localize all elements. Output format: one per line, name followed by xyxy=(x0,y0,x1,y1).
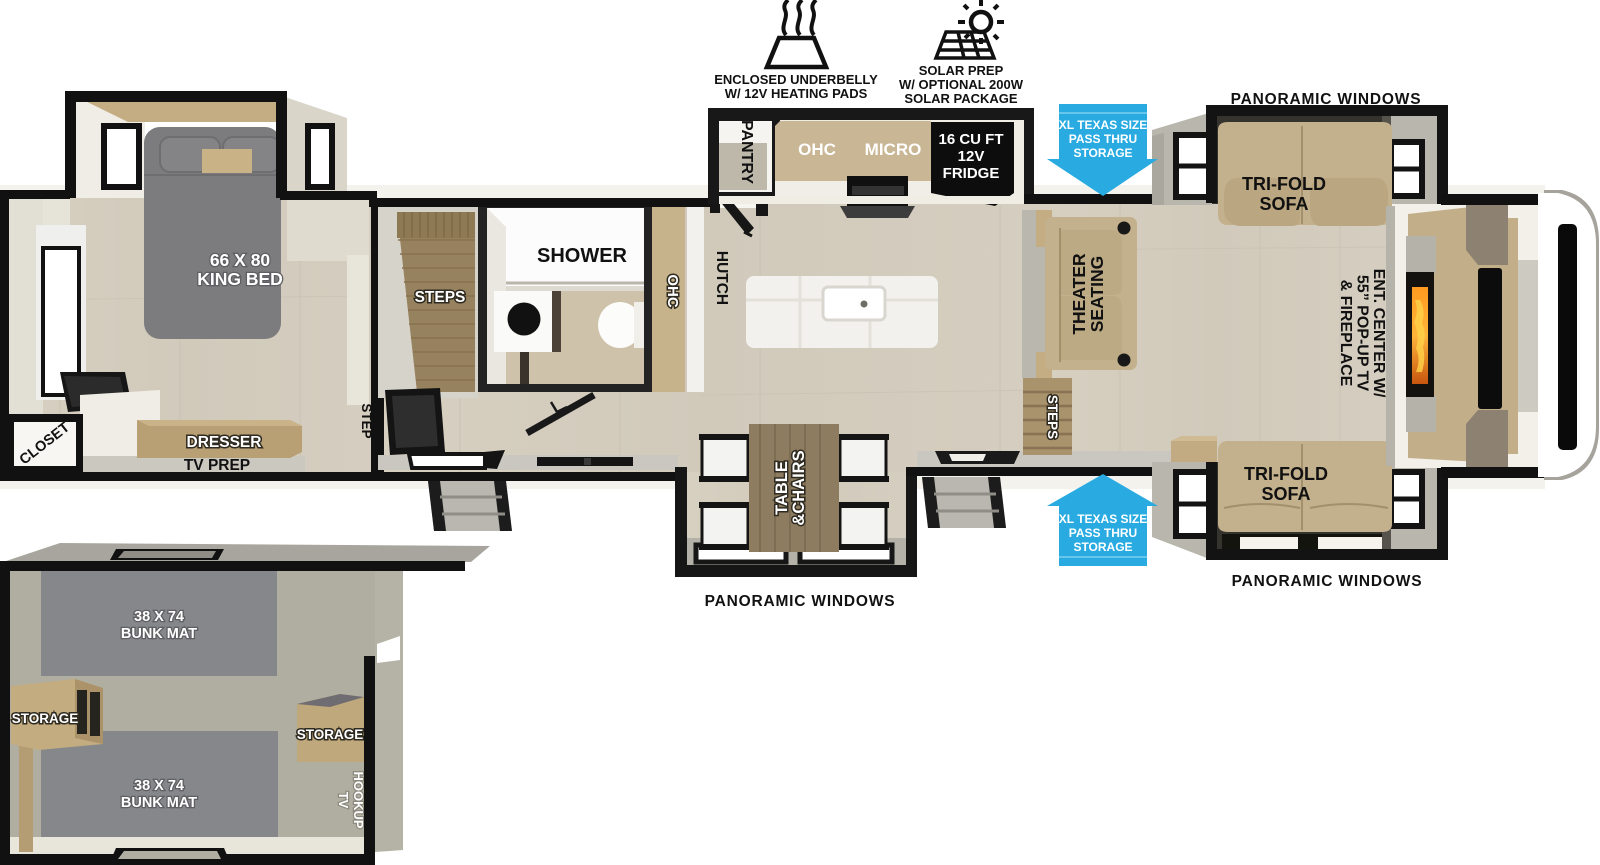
svg-text:OHC: OHC xyxy=(798,140,836,159)
svg-text:TRI-FOLD: TRI-FOLD xyxy=(1244,464,1328,484)
svg-text:DRESSER: DRESSER xyxy=(187,434,262,451)
svg-text:PASS THRU: PASS THRU xyxy=(1069,132,1137,146)
svg-text:STORAGE: STORAGE xyxy=(1073,540,1132,554)
svg-text:SHOWER: SHOWER xyxy=(537,245,628,267)
svg-text:OHC: OHC xyxy=(664,274,681,308)
svg-text:BUNK MAT: BUNK MAT xyxy=(121,626,197,642)
svg-text:SOFA: SOFA xyxy=(1259,194,1308,214)
svg-text:XL TEXAS SIZE: XL TEXAS SIZE xyxy=(1059,118,1147,132)
svg-text:W/ OPTIONAL 200W: W/ OPTIONAL 200W xyxy=(899,77,1024,92)
svg-text:TV: TV xyxy=(336,792,351,809)
svg-text:66 X 80: 66 X 80 xyxy=(210,250,271,270)
svg-text:KING BED: KING BED xyxy=(197,269,283,289)
svg-text:SOLAR PACKAGE: SOLAR PACKAGE xyxy=(904,91,1017,106)
svg-text:PANORAMIC WINDOWS: PANORAMIC WINDOWS xyxy=(705,593,896,610)
svg-text:ENT. CENTER W/55” POP-UP TV& F: ENT. CENTER W/55” POP-UP TV& FIREPLACE xyxy=(1337,269,1387,398)
svg-text:STEPS: STEPS xyxy=(1045,395,1060,439)
svg-text:16 CU FT: 16 CU FT xyxy=(938,131,1003,148)
svg-text:PANORAMIC WINDOWS: PANORAMIC WINDOWS xyxy=(1232,573,1423,590)
svg-text:HOOKUP: HOOKUP xyxy=(351,771,366,828)
svg-text:W/ 12V HEATING PADS: W/ 12V HEATING PADS xyxy=(725,86,868,101)
svg-text:ENCLOSED UNDERBELLY: ENCLOSED UNDERBELLY xyxy=(714,72,878,87)
svg-text:BUNK MAT: BUNK MAT xyxy=(121,795,197,811)
svg-text:TRI-FOLD: TRI-FOLD xyxy=(1242,174,1326,194)
svg-text:12V: 12V xyxy=(958,148,985,165)
svg-text:MICRO: MICRO xyxy=(865,140,922,159)
svg-text:FRIDGE: FRIDGE xyxy=(943,165,1000,182)
svg-text:STORAGE: STORAGE xyxy=(297,727,364,742)
svg-text:XL TEXAS SIZE: XL TEXAS SIZE xyxy=(1059,512,1147,526)
svg-text:SOLAR PREP: SOLAR PREP xyxy=(919,63,1004,78)
svg-text:PANTRY: PANTRY xyxy=(738,120,755,184)
svg-text:38 X 74: 38 X 74 xyxy=(134,778,184,794)
svg-text:PASS THRU: PASS THRU xyxy=(1069,526,1137,540)
svg-text:PANORAMIC WINDOWS: PANORAMIC WINDOWS xyxy=(1231,91,1422,108)
svg-text:STORAGE: STORAGE xyxy=(1073,146,1132,160)
svg-text:38 X 74: 38 X 74 xyxy=(134,609,184,625)
svg-text:THEATERSEATING: THEATERSEATING xyxy=(1069,253,1107,335)
svg-text:TABLE&CHAIRS: TABLE&CHAIRS xyxy=(773,450,808,525)
svg-text:STEPS: STEPS xyxy=(415,289,466,306)
svg-text:STORAGE: STORAGE xyxy=(12,711,79,726)
svg-text:SOFA: SOFA xyxy=(1261,484,1310,504)
svg-text:TV PREP: TV PREP xyxy=(184,457,250,474)
svg-text:HUTCH: HUTCH xyxy=(713,251,730,305)
